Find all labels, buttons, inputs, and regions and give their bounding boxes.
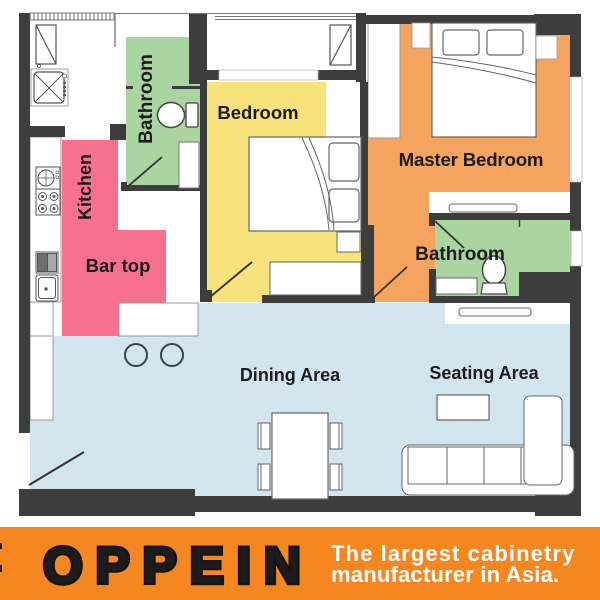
svg-text:Bathroom: Bathroom <box>415 244 505 265</box>
svg-text:Seating Area: Seating Area <box>429 363 539 383</box>
svg-text:Master Bedroom: Master Bedroom <box>399 149 544 170</box>
svg-text:OPPEIN: OPPEIN <box>43 537 314 594</box>
svg-text:Dining Area: Dining Area <box>240 365 341 385</box>
svg-text:manufacturer in Asia.: manufacturer in Asia. <box>331 562 559 587</box>
svg-text:Kitchen: Kitchen <box>75 154 95 220</box>
svg-text:Bathroom: Bathroom <box>136 54 157 144</box>
svg-text:Bar top: Bar top <box>86 255 151 276</box>
svg-text:Bedroom: Bedroom <box>217 102 298 123</box>
